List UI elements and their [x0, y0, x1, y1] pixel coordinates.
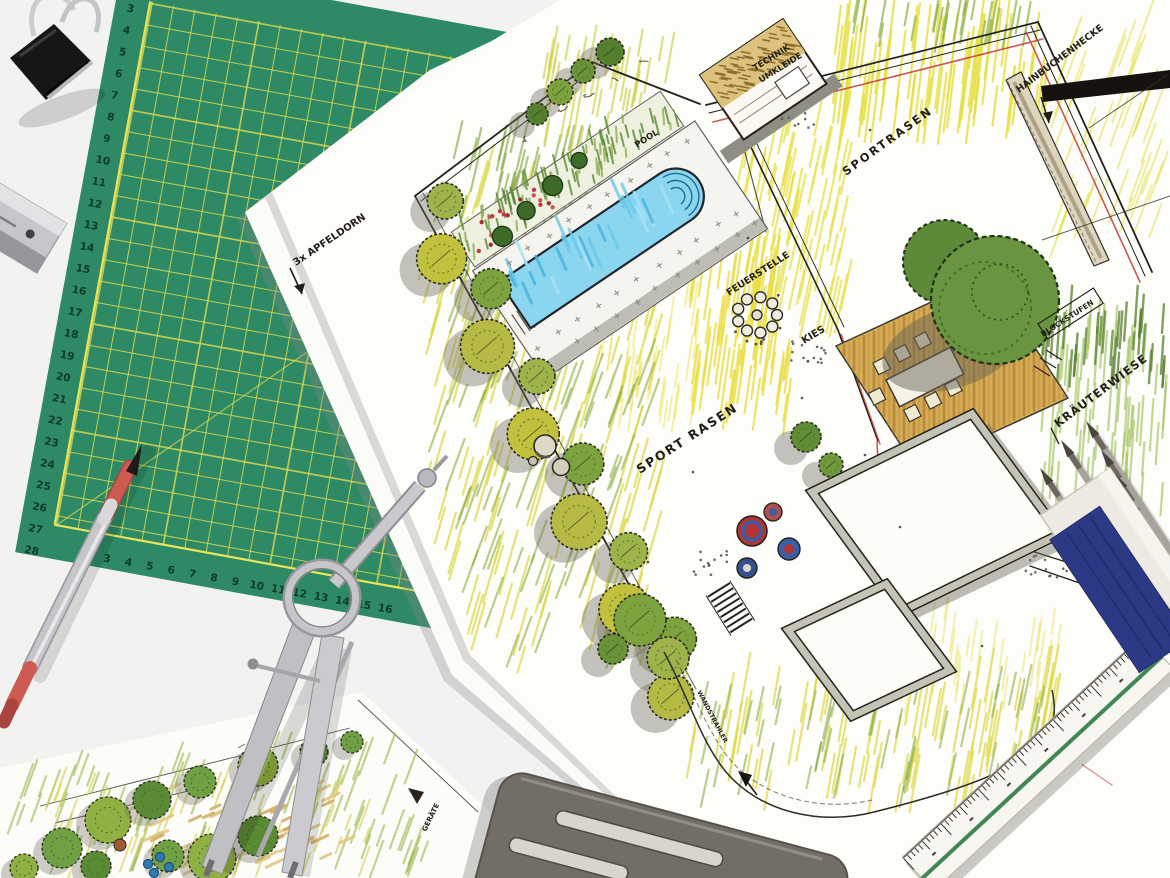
svg-text:23: 23	[43, 435, 60, 449]
desk-scene: 3456789101112131415161718192021222324252…	[0, 0, 1170, 878]
svg-text:21: 21	[51, 392, 68, 406]
svg-text:17: 17	[67, 305, 84, 319]
svg-text:15: 15	[75, 262, 92, 276]
svg-text:10: 10	[248, 579, 265, 593]
svg-text:13: 13	[83, 219, 100, 233]
svg-text:11: 11	[91, 175, 108, 189]
svg-text:19: 19	[59, 349, 76, 363]
